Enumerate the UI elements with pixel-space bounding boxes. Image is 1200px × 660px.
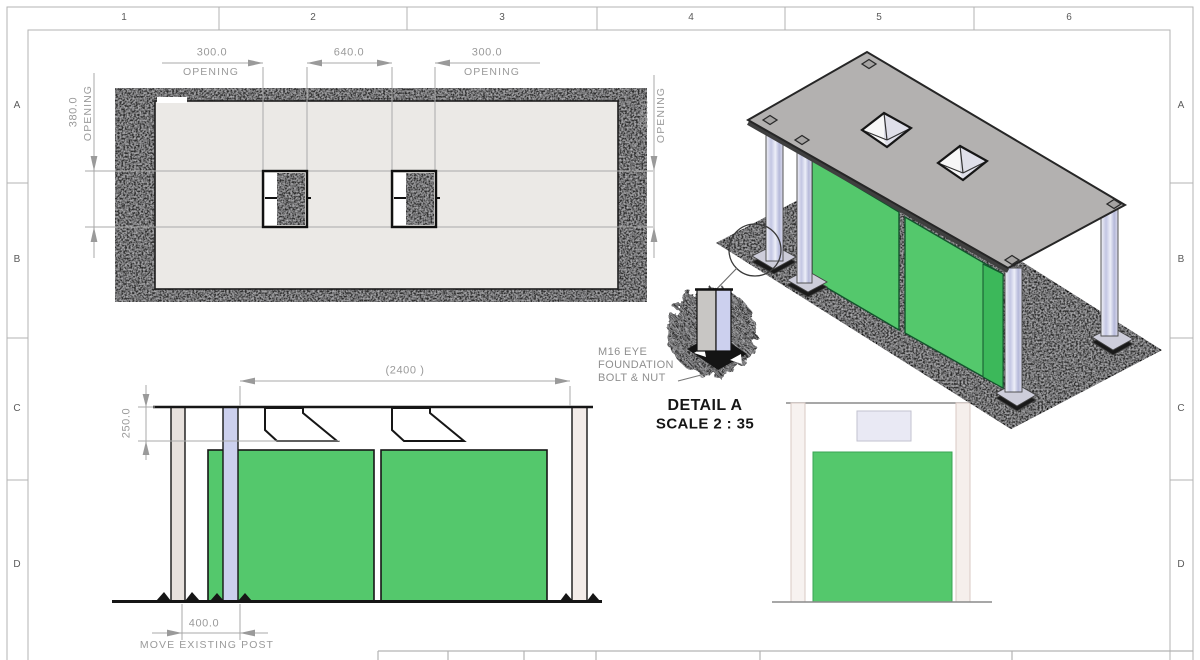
grid-column-label: 5 xyxy=(876,13,882,23)
dim-opening-right-label: OPENING xyxy=(464,67,520,78)
plan-hatch-opening-2 xyxy=(392,171,440,227)
plan-notch xyxy=(157,97,187,103)
plan-hatch-opening-1 xyxy=(263,171,311,227)
grid-column-label: 6 xyxy=(1066,13,1072,23)
dim-opening-left-label: OPENING xyxy=(183,67,239,78)
elevation-post-moved xyxy=(223,407,238,601)
grid-row-label: D xyxy=(1177,560,1184,570)
detail-label-leader xyxy=(678,374,705,381)
callout-line: M16 EYE xyxy=(598,346,674,359)
callout-line: BOLT & NUT xyxy=(598,372,674,385)
side-panel xyxy=(813,452,952,602)
plan-view xyxy=(85,60,657,302)
dim-side-left-label: OPENING xyxy=(83,85,94,141)
drawing-sheet: 1 2 3 4 5 6 A B C D A B C D 300.0 OPENIN… xyxy=(0,0,1200,660)
title-block-partial xyxy=(378,651,1193,660)
grid-row-label: C xyxy=(13,404,20,414)
elevation-chute-1 xyxy=(265,408,337,441)
detail-a-view xyxy=(668,288,756,381)
dim-side-right-value: 380.0 xyxy=(640,99,651,130)
dim-opening-left-value: 300.0 xyxy=(197,48,228,59)
dim-center-value: 640.0 xyxy=(334,48,365,59)
isometric-view xyxy=(707,52,1160,428)
grid-row-label: B xyxy=(14,255,21,265)
elevation-panel-2 xyxy=(381,450,547,601)
grid-row-label: B xyxy=(1178,255,1185,265)
dim-post-offset: 400.0 xyxy=(189,619,220,630)
grid-row-label: C xyxy=(1177,404,1184,414)
side-view xyxy=(772,403,992,602)
elevation-chute-2 xyxy=(392,408,464,441)
side-chute xyxy=(857,411,911,441)
dim-side-right-label: OPENING xyxy=(656,87,667,143)
detail-callout-label: M16 EYE FOUNDATION BOLT & NUT xyxy=(598,346,674,385)
dim-opening-right-value: 300.0 xyxy=(472,48,503,59)
grid-row-label: A xyxy=(1178,101,1185,111)
callout-line: FOUNDATION xyxy=(598,359,674,372)
detail-title: DETAIL A xyxy=(668,398,743,414)
grid-column-label: 2 xyxy=(310,13,316,23)
side-post-left xyxy=(791,403,805,602)
dim-overall-width: (2400 ) xyxy=(385,366,424,377)
side-post-right xyxy=(956,403,970,602)
detail-post-side xyxy=(716,289,731,351)
iso-bin-2-edge xyxy=(983,264,1003,388)
note-move-existing-post: MOVE EXISTING POST xyxy=(140,640,274,651)
dim-roof-to-panel: 250.0 xyxy=(122,408,133,439)
elevation-post-right xyxy=(572,407,587,601)
grid-column-label: 4 xyxy=(688,13,694,23)
drawing-canvas xyxy=(0,0,1200,660)
dim-side-left-value: 380.0 xyxy=(69,97,80,128)
grid-row-label: D xyxy=(13,560,20,570)
elevation-view xyxy=(112,378,602,640)
detail-scale: SCALE 2 : 35 xyxy=(656,417,754,432)
grid-row-label: A xyxy=(14,101,21,111)
elevation-post-existing xyxy=(171,407,185,601)
detail-post-front xyxy=(697,289,716,351)
grid-column-label: 1 xyxy=(121,13,127,23)
plan-roof-slab xyxy=(155,101,618,289)
grid-column-label: 3 xyxy=(499,13,505,23)
